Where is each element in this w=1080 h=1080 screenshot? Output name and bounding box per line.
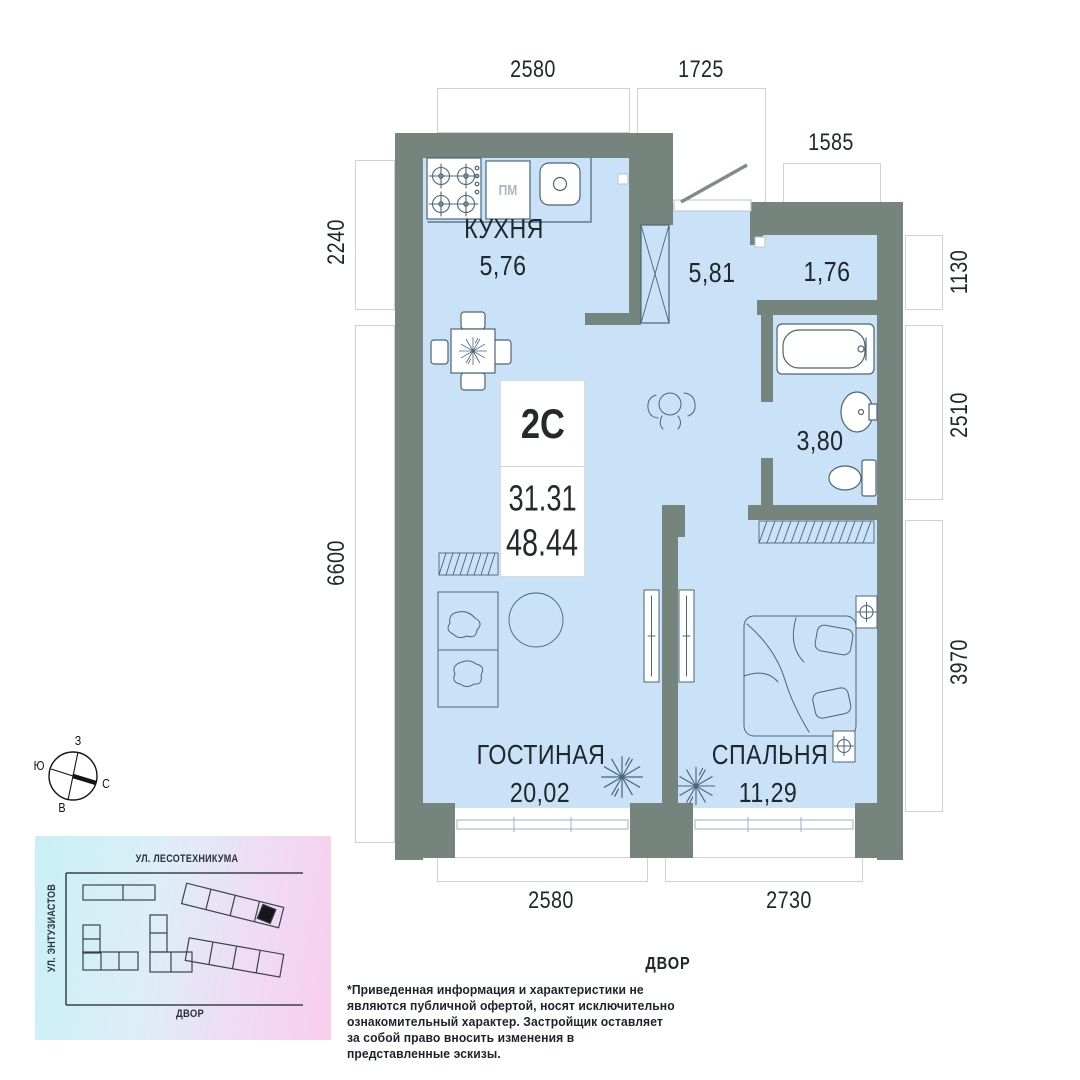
wardrobe-rack-bedroom	[759, 521, 874, 543]
dim-left-1: 2240	[322, 219, 350, 265]
room-kitchen-area: 5,76	[480, 250, 527, 282]
bathtub-icon	[777, 324, 874, 374]
room-kitchen-name: КУХНЯ	[464, 213, 544, 245]
coat-rack-living	[439, 553, 498, 575]
dim-bottom-2: 2730	[766, 886, 812, 914]
round-rug-icon	[509, 593, 563, 647]
unit-living-area: 31.31	[508, 477, 576, 520]
dim-extent-right-3	[905, 520, 943, 812]
compass-east: В	[58, 801, 65, 816]
dim-top-1: 2580	[510, 55, 556, 83]
unit-total-area: 48.44	[506, 520, 578, 566]
yard-label: ДВОР	[645, 954, 690, 975]
sliding-door-icon	[644, 590, 694, 682]
bed-icon	[744, 616, 856, 736]
disclaimer-text: *Приведенная информация и характеристики…	[347, 982, 675, 1062]
room-hallway-area: 5,81	[689, 257, 736, 289]
dim-left-2: 6600	[322, 540, 350, 586]
room-bedroom-area: 11,29	[739, 777, 798, 809]
kitchen-sink-icon	[540, 163, 580, 205]
sitemap-street-top: УЛ. ЛЕСОТЕХНИКУМА	[136, 853, 239, 865]
compass-west: З	[75, 734, 82, 749]
compass-icon	[49, 752, 97, 800]
windows	[457, 817, 853, 832]
floorplan-page: 2580 1725 1585 2240 6600 1130 2510 3970 …	[0, 0, 1080, 1080]
person-sketch	[648, 393, 695, 429]
room-storage-area: 1,76	[804, 256, 851, 288]
dim-right-3: 3970	[945, 639, 973, 685]
dim-extent-right-1	[905, 235, 943, 310]
dining-table-icon	[431, 312, 511, 390]
closet-icon	[641, 225, 669, 323]
dim-extent-left-2	[355, 325, 395, 843]
dim-extent-top-3	[783, 163, 881, 205]
unit-info-card: 2С 31.31 48.44	[500, 380, 585, 577]
stove-icon	[427, 158, 481, 219]
dim-right-2: 2510	[945, 392, 973, 438]
room-bathroom-area: 3,80	[797, 425, 844, 457]
compass-south: Ю	[34, 759, 45, 774]
dim-extent-top-2	[637, 88, 766, 205]
sitemap-yard-label: ДВОР	[176, 1008, 204, 1020]
wardrobe-icon	[438, 592, 498, 707]
unit-type: 2С	[520, 400, 564, 448]
dishwasher-label: ПМ	[499, 182, 518, 199]
dim-extent-left-1	[355, 160, 395, 310]
plant-icon-bedroom	[677, 767, 714, 804]
plant-icon-living	[602, 757, 643, 798]
dim-extent-top-1	[437, 88, 630, 133]
room-living-name: ГОСТИНАЯ	[477, 739, 606, 771]
toilet-icon	[829, 460, 876, 496]
compass-north: С	[102, 777, 110, 792]
dim-extent-bottom-1	[437, 857, 648, 882]
dim-top-3: 1585	[808, 128, 854, 156]
dim-top-2: 1725	[678, 55, 724, 83]
dim-extent-bottom-2	[665, 857, 863, 882]
dim-extent-right-2	[905, 325, 943, 500]
sitemap-street-left: УЛ. ЭНТУЗИАСТОВ	[46, 884, 58, 972]
nightstand-icon	[833, 596, 877, 762]
dim-bottom-1: 2580	[528, 886, 574, 914]
dim-right-1: 1130	[945, 250, 973, 294]
room-bedroom-name: СПАЛЬНЯ	[712, 739, 828, 771]
washbasin-icon	[841, 392, 877, 432]
room-living-area: 20,02	[510, 777, 570, 809]
